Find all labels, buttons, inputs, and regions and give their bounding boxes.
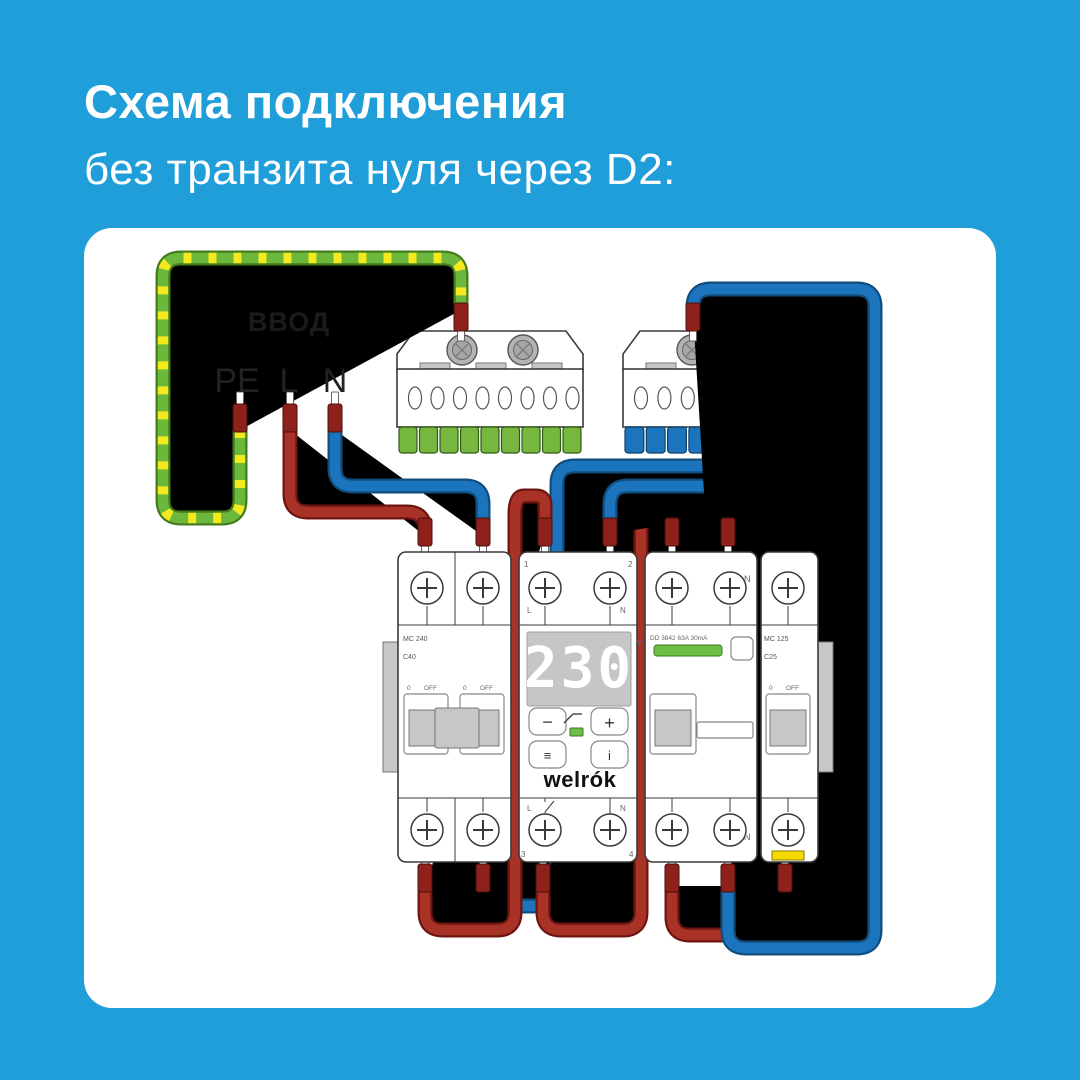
- input-breaker: MC 240 C40 0 OFF 0 OFF: [383, 552, 511, 862]
- terminal-screw: [467, 572, 499, 604]
- svg-text:≡: ≡: [544, 748, 552, 763]
- breaker-right-rating: C25: [764, 654, 777, 661]
- terminal-screw: [714, 572, 746, 604]
- pe-bus-bar: [397, 331, 583, 453]
- terminal-screw: [594, 572, 626, 604]
- rcd-indicator-bar: [654, 645, 722, 656]
- terminal-screw: [467, 814, 499, 846]
- svg-text:L: L: [527, 606, 532, 615]
- terminal-screw: [594, 814, 626, 846]
- relay-display-unit: V: [636, 637, 642, 647]
- terminal-screw: [411, 572, 443, 604]
- svg-text:0: 0: [407, 685, 411, 692]
- svg-text:0: 0: [463, 685, 467, 692]
- n-label: N: [323, 362, 348, 400]
- breaker-right-toggle: [766, 694, 810, 754]
- relay-status-led: [570, 728, 583, 736]
- terminal-screw: [529, 814, 561, 846]
- svg-text:N: N: [744, 574, 751, 584]
- rcd-breaker: N N DD 3842 63A 30mA: [645, 552, 757, 862]
- terminal-screw: [714, 814, 746, 846]
- rcd-label: DD 3842 63A 30mA: [650, 635, 708, 642]
- terminal-screw: [656, 814, 688, 846]
- pe-bus-screw: [508, 335, 538, 365]
- relay-display-value: 230: [524, 636, 634, 701]
- pe-bus-clamps: [399, 427, 581, 453]
- svg-text:OFF: OFF: [480, 685, 493, 692]
- terminal-screw: [656, 572, 688, 604]
- relay-terminal-1: 1: [524, 560, 529, 569]
- wiring-diagram: MC 240 C40 0 OFF 0 OFF 1 2 3 4 L N L: [0, 0, 1080, 1080]
- l-label: L: [280, 362, 299, 400]
- terminal-screw: [529, 572, 561, 604]
- breaker-left-model: MC 240: [403, 636, 428, 643]
- voltage-relay-d2: 1 2 3 4 L N L N 230 V − + ≡ i welrók: [519, 552, 642, 862]
- svg-text:N: N: [744, 832, 751, 842]
- svg-text:N: N: [620, 804, 626, 813]
- breaker-left-rating: C40: [403, 654, 416, 661]
- din-clip-right: [818, 642, 833, 772]
- input-title: ВВОД: [248, 307, 330, 337]
- relay-brand-logo: welrók: [543, 767, 617, 792]
- breaker-right-model: MC 125: [764, 636, 789, 643]
- svg-text:OFF: OFF: [424, 685, 437, 692]
- svg-text:L: L: [527, 804, 532, 813]
- relay-terminal-4: 4: [629, 850, 634, 859]
- terminal-screw: [772, 814, 804, 846]
- terminal-screw: [411, 814, 443, 846]
- svg-text:i: i: [608, 748, 611, 763]
- pe-label: PE: [214, 362, 259, 400]
- relay-terminal-2: 2: [628, 560, 633, 569]
- terminal-marker-yellow: [772, 851, 804, 860]
- relay-terminal-3: 3: [521, 850, 526, 859]
- svg-text:+: +: [604, 713, 615, 733]
- svg-text:0: 0: [769, 685, 773, 692]
- terminal-screw: [772, 572, 804, 604]
- svg-text:OFF: OFF: [786, 685, 799, 692]
- din-clip-left: [383, 642, 398, 772]
- svg-text:−: −: [542, 712, 553, 732]
- rcd-test-button: [731, 637, 753, 660]
- svg-text:N: N: [620, 606, 626, 615]
